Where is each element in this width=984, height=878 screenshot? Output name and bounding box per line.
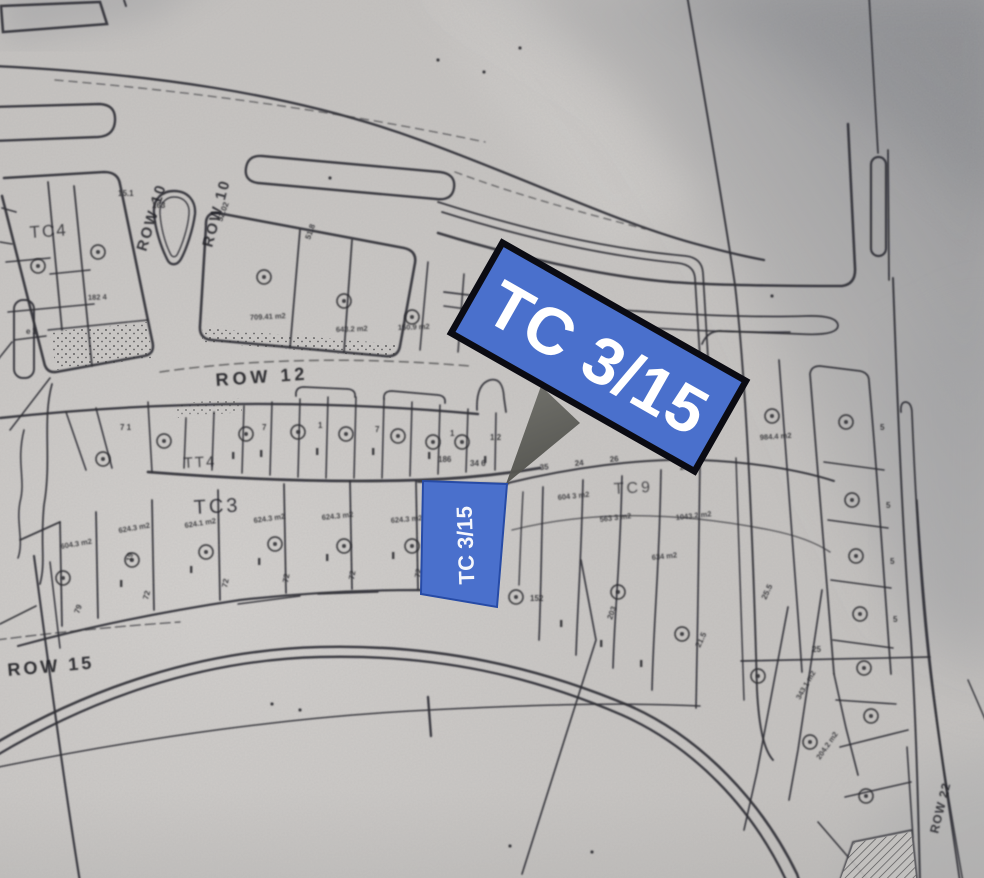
svg-text:TC 3/15: TC 3/15 bbox=[452, 506, 480, 585]
svg-text:643.2 m2: 643.2 m2 bbox=[336, 324, 368, 334]
svg-text:5: 5 bbox=[893, 615, 898, 624]
svg-text:25: 25 bbox=[812, 645, 821, 654]
svg-text:TC3: TC3 bbox=[193, 495, 241, 519]
svg-text:186: 186 bbox=[438, 455, 452, 464]
svg-text:1: 1 bbox=[450, 429, 455, 438]
svg-text:5: 5 bbox=[880, 423, 885, 432]
svg-text:182 4: 182 4 bbox=[88, 292, 108, 302]
svg-text:7: 7 bbox=[375, 425, 380, 434]
svg-text:5: 5 bbox=[890, 557, 895, 566]
svg-text:7 1: 7 1 bbox=[120, 423, 132, 432]
svg-text:15.1: 15.1 bbox=[118, 189, 134, 198]
svg-text:34 6: 34 6 bbox=[470, 459, 486, 468]
svg-text:7: 7 bbox=[262, 423, 267, 432]
svg-text:163: 163 bbox=[152, 201, 166, 210]
svg-text:TC4: TC4 bbox=[29, 220, 68, 242]
svg-text:5: 5 bbox=[886, 501, 891, 510]
svg-text:150.9 m2: 150.9 m2 bbox=[398, 322, 430, 332]
svg-text:709.41 m2: 709.41 m2 bbox=[250, 311, 286, 322]
svg-text:152: 152 bbox=[530, 594, 544, 603]
svg-text:1 2: 1 2 bbox=[490, 433, 502, 442]
svg-text:TT4: TT4 bbox=[183, 453, 217, 472]
svg-text:35: 35 bbox=[539, 462, 549, 472]
svg-text:TC9: TC9 bbox=[613, 479, 653, 498]
svg-text:1: 1 bbox=[318, 421, 323, 430]
svg-text:24: 24 bbox=[574, 458, 584, 468]
svg-text:26: 26 bbox=[609, 454, 619, 464]
svg-text:e 1: e 1 bbox=[26, 327, 38, 336]
